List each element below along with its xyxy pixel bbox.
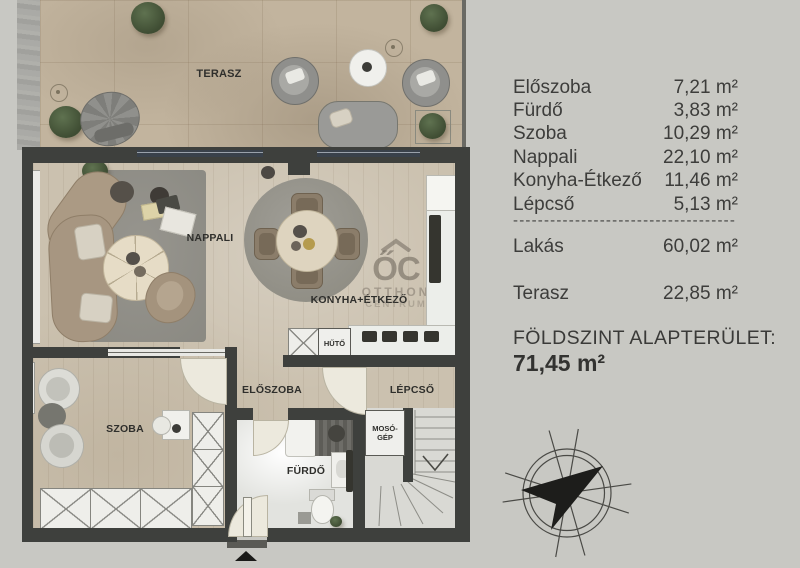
- terrace-chair: [271, 57, 319, 105]
- cooktop-burner: [424, 331, 439, 342]
- terrace-plant: [49, 106, 83, 138]
- wardrobe: [192, 486, 224, 526]
- dish: [303, 238, 315, 250]
- wardrobe: [192, 412, 224, 451]
- cooktop-burner: [382, 331, 397, 342]
- terrace-chair: [402, 59, 450, 107]
- total-row-lakas: Lakás 60,02 m²: [513, 236, 738, 258]
- table-row: Szoba 10,29 m²: [513, 123, 738, 146]
- bath-mat: [298, 512, 311, 524]
- sofa-pillow: [74, 223, 107, 261]
- wall: [237, 408, 253, 420]
- washing-machine: MOSÓ-GÉP: [365, 410, 405, 456]
- total-row-terasz: Terasz 22,85 m²: [513, 283, 738, 305]
- bathroom-mirror: [346, 450, 353, 492]
- watermark: ŐC OTTHON CENTRUM: [356, 238, 436, 310]
- floorplan-drawing: TERASZ NAPPALI KONYHA+ÉTKEZŐ: [0, 0, 490, 568]
- dish: [293, 225, 307, 238]
- area-table: Előszoba 7,21 m² Fürdő 3,83 m² Szoba 10,…: [513, 76, 738, 216]
- room-label-eloszoba: ELŐSZOBA: [242, 384, 302, 396]
- shower-drain: [328, 425, 345, 442]
- floorplan-page: TERASZ NAPPALI KONYHA+ÉTKEZŐ: [0, 0, 800, 568]
- watermark-logo: ŐC: [356, 252, 436, 285]
- wall-pier: [288, 163, 310, 175]
- window-glazing: [317, 150, 420, 157]
- room-label-nappali: NAPPALI: [187, 232, 234, 244]
- sofa-pillow: [79, 292, 114, 323]
- terrace-plant: [131, 2, 165, 34]
- wall: [353, 408, 365, 542]
- room-label-terasz: TERASZ: [196, 68, 241, 80]
- fridge: HŰTŐ: [318, 328, 351, 358]
- watermark-text: OTTHON: [356, 285, 436, 299]
- total-area: 60,02 m²: [663, 236, 738, 258]
- exterior-concrete-wall: [17, 0, 40, 150]
- kitchen-cabinet: [288, 328, 319, 358]
- terrace-table-decor: [362, 62, 372, 72]
- table-row: Nappali 22,10 m²: [513, 146, 738, 169]
- wall: [283, 355, 470, 367]
- side-table: [110, 181, 134, 203]
- room-area: 11,46 m²: [664, 170, 738, 192]
- table-row: Előszoba 7,21 m²: [513, 76, 738, 99]
- wardrobe: [90, 488, 142, 530]
- room-name: Szoba: [513, 123, 567, 145]
- label-mosogep: MOSÓ-GÉP: [366, 424, 404, 442]
- label-huto: HŰTŐ: [324, 339, 345, 348]
- sliding-door: [108, 349, 228, 356]
- sprinkler-icon: [50, 84, 68, 102]
- entrance-arrow-icon: [235, 551, 257, 561]
- wall: [455, 147, 470, 542]
- watermark-text: CENTRUM: [356, 299, 436, 310]
- room-name: Nappali: [513, 147, 577, 169]
- terrace-plant: [420, 4, 448, 32]
- pendant-lamp-icon: [261, 166, 275, 179]
- room-label-szoba: SZOBA: [106, 423, 144, 435]
- sprinkler-icon: [385, 39, 403, 57]
- total-name: Terasz: [513, 283, 569, 305]
- room-name: Fürdő: [513, 100, 563, 122]
- table-decor: [134, 266, 146, 277]
- table-row: Fürdő 3,83 m²: [513, 99, 738, 122]
- room-label-lepcso: LÉPCSŐ: [390, 384, 434, 396]
- cooktop-burner: [362, 331, 377, 342]
- room-area: 3,83 m²: [674, 100, 738, 122]
- dashed-separator: ------------------------------------: [513, 212, 739, 229]
- kitchen-upper-cabinet: [426, 175, 457, 211]
- ground-floor-title: FÖLDSZINT ALAPTERÜLET:: [513, 327, 776, 350]
- compass-icon: [500, 426, 634, 560]
- total-name: Lakás: [513, 236, 564, 258]
- room-area: 10,29 m²: [663, 123, 738, 145]
- wardrobe: [192, 449, 224, 488]
- wardrobe: [40, 488, 92, 530]
- window-glazing: [137, 150, 263, 157]
- shower-tray: [285, 419, 317, 457]
- wall: [22, 528, 227, 542]
- ground-floor-total: 71,45 m²: [513, 350, 605, 377]
- terrace-railing: [462, 0, 466, 150]
- room-label-furdo: FÜRDŐ: [287, 465, 325, 477]
- stair-direction-icon: [423, 454, 448, 470]
- entry-door-leaf: [243, 497, 252, 537]
- cooktop-burner: [403, 331, 418, 342]
- room-name: Előszoba: [513, 77, 591, 99]
- table-row: Konyha-Étkező 11,46 m²: [513, 170, 738, 193]
- planter-box: [415, 110, 451, 144]
- desk-item: [172, 424, 181, 433]
- terrace-sofa: [318, 101, 398, 149]
- table-decor: [126, 252, 140, 265]
- room-area: 22,10 m²: [663, 147, 738, 169]
- wall: [22, 147, 33, 542]
- room-area: 7,21 m²: [674, 77, 738, 99]
- wardrobe: [140, 488, 192, 530]
- total-area: 22,85 m²: [663, 283, 738, 305]
- dish: [291, 241, 301, 251]
- bathroom-plant: [330, 516, 342, 527]
- oven: [429, 215, 441, 283]
- desk-chair: [152, 416, 171, 435]
- wall: [267, 528, 470, 542]
- room-name: Konyha-Étkező: [513, 170, 642, 192]
- window: [33, 170, 40, 344]
